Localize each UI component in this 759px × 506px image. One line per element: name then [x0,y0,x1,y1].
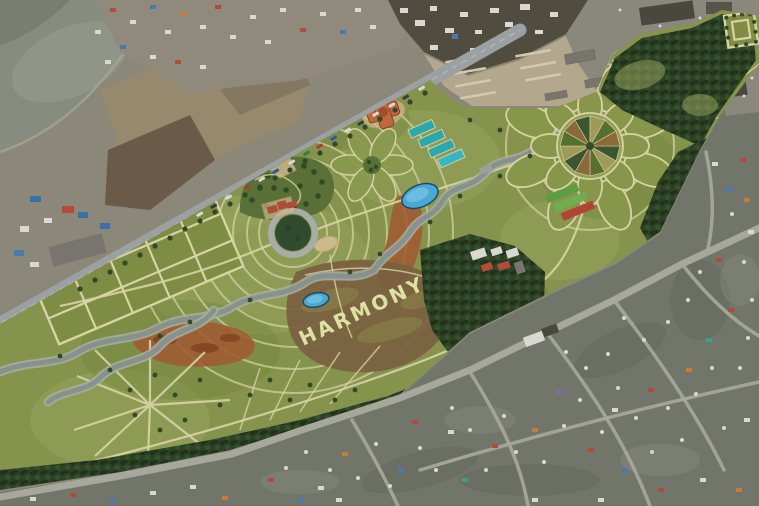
central-circle-lawn [275,215,311,251]
formal-square-garden [723,11,759,49]
aerial-masterplan-canvas: HARMONY [0,0,759,506]
aerial-masterplan-view: HARMONY [0,0,759,506]
